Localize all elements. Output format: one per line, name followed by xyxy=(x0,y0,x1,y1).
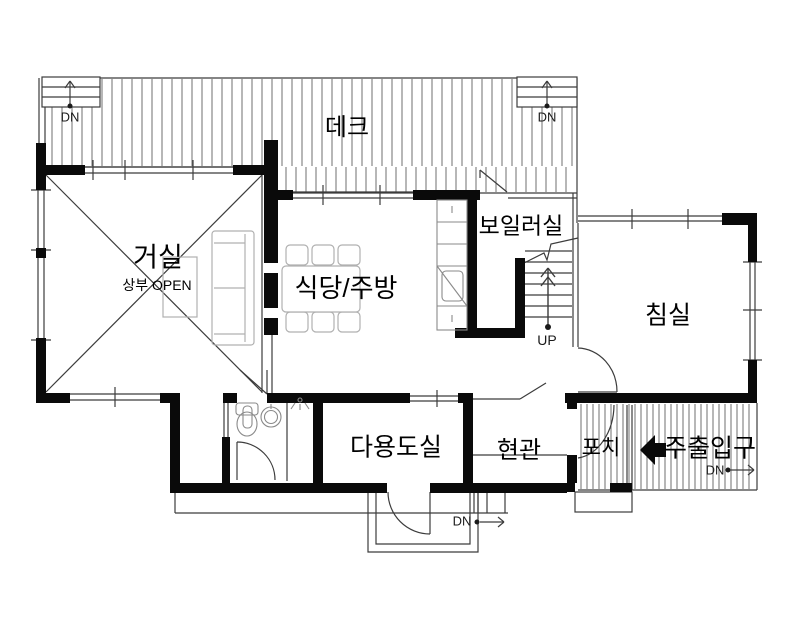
bathroom-fixtures xyxy=(236,398,309,436)
deck-stairs-left xyxy=(42,77,100,109)
main-entry-label: 주출입구 xyxy=(664,437,756,462)
floor-plan: 데크 DN DN 거실 상부 OPEN 식당/주방 보일러실 UP 침실 다용도… xyxy=(0,0,800,640)
stairs-up-arrow xyxy=(541,268,555,330)
main-entry-arrow xyxy=(640,435,666,465)
dining-kitchen-label: 식당/주방 xyxy=(295,275,398,301)
dn-label-top-left: DN xyxy=(61,111,80,124)
deck-label: 데크 xyxy=(325,116,369,140)
dn-label-porch: DN xyxy=(706,464,725,477)
utility-room-label: 다용도실 xyxy=(350,436,442,461)
boiler-room-label: 보일러실 xyxy=(479,215,564,238)
living-open-above-label: 상부 OPEN xyxy=(122,278,191,292)
dn-label-top-right: DN xyxy=(538,111,557,124)
deck-hatch-lower xyxy=(276,167,566,192)
deck-stairs-right xyxy=(517,77,577,109)
deck-hatch-upper xyxy=(52,79,572,166)
toilet-tank xyxy=(236,403,258,415)
porch-label: 포치 xyxy=(582,438,621,459)
entrance-label: 현관 xyxy=(497,439,541,463)
shower-head xyxy=(291,403,295,409)
living-room-label: 거실 xyxy=(133,245,183,272)
kitchen-counter xyxy=(437,200,467,330)
dn-label-bottom: DN xyxy=(453,515,472,528)
toilet-bowl xyxy=(237,412,257,436)
bedroom-label: 침실 xyxy=(645,304,691,329)
up-label: UP xyxy=(537,333,556,347)
